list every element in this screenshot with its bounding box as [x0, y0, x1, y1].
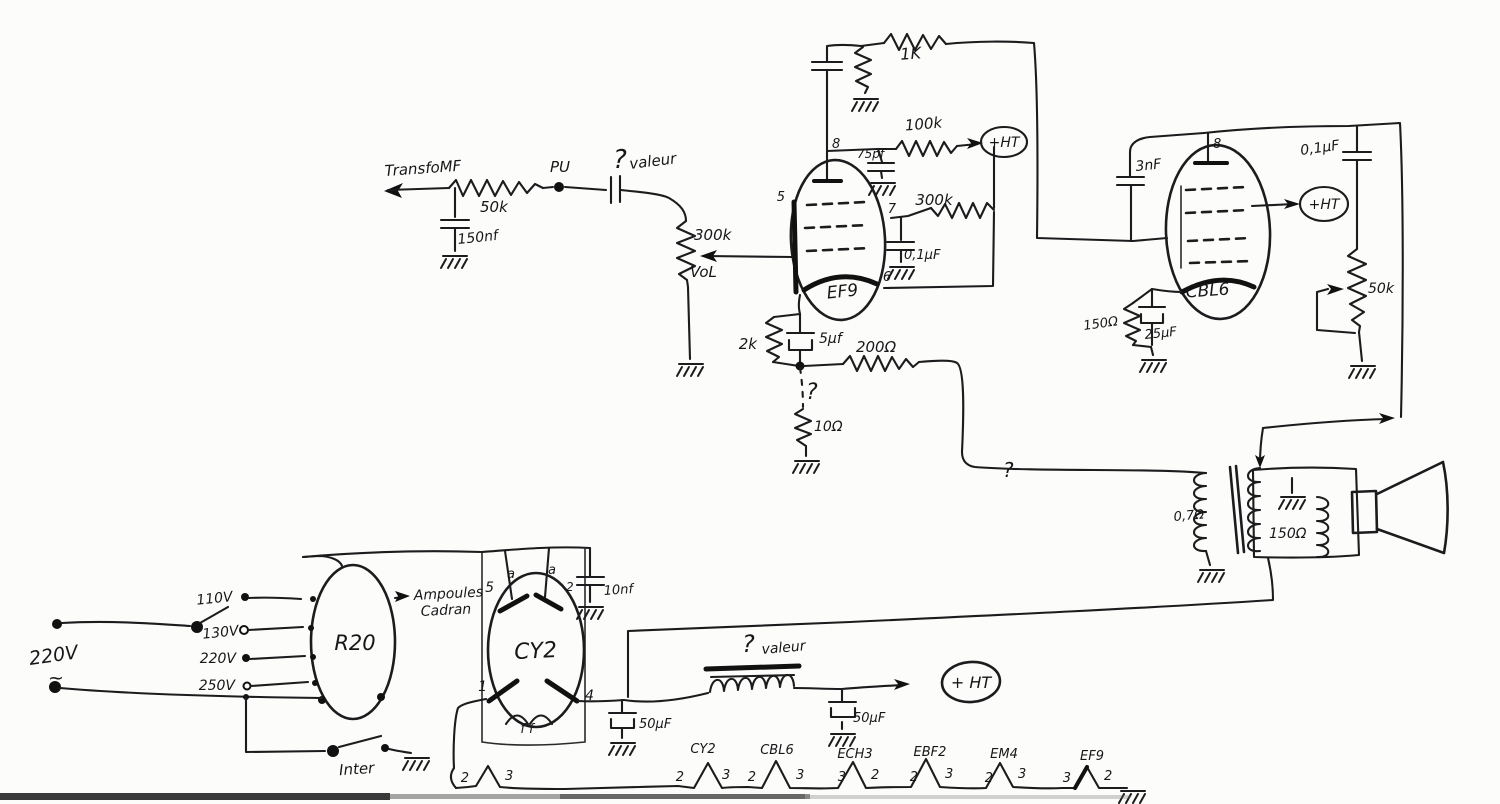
heater-pin: 3: [1018, 767, 1026, 782]
heater-pin: 2: [1104, 769, 1112, 784]
label-75pf: 75pf: [857, 147, 886, 161]
ground-icon: [888, 267, 914, 279]
tone-cap: [1343, 126, 1371, 249]
label-ht3: + HT: [951, 673, 993, 692]
cbl6-stage: 3nF 8 +HT 0,1μF 50k 150Ω 25μF CBL6: [1082, 123, 1402, 417]
resistor-10ohm: [795, 409, 811, 446]
ground-icon: [677, 364, 703, 376]
label-choke-valeur: valeur: [761, 638, 807, 658]
label-r20: R20: [334, 631, 375, 655]
label-cy2-pin4: 4: [585, 688, 594, 704]
label-pu: PU: [550, 158, 570, 176]
label-50uf-2: 50μF: [853, 711, 886, 726]
heater-pin: 2: [748, 770, 756, 785]
resistor-50k: [449, 180, 543, 196]
cap-50uf-1: [609, 700, 636, 738]
tone-wiper-arrow-icon: [1327, 284, 1344, 295]
hum-dashed-wire: [800, 368, 803, 407]
label-cy2-name: CY2: [514, 638, 558, 665]
resistor-150ohm: [1124, 303, 1140, 345]
schematic-drawing: TransfoMF 50k 150nf PU ? valeur 300k VoL…: [0, 0, 1500, 804]
cbl6-grids: [1186, 187, 1252, 263]
input-stage: TransfoMF 50k 150nf PU ? valeur 300k VoL: [384, 145, 793, 376]
schematic-page: TransfoMF 50k 150nf PU ? valeur 300k VoL…: [0, 0, 1500, 804]
label-3nf: 3nF: [1135, 156, 1163, 175]
label-tap220: 220V: [200, 651, 238, 667]
resistor-100k: [896, 141, 957, 156]
label-cy2-a-right: a: [548, 563, 556, 578]
label-2k: 2k: [739, 335, 759, 353]
label-pre-right: 3: [505, 769, 513, 784]
heater-pin: 3: [838, 770, 846, 785]
label-mains-wave: ~: [48, 667, 64, 689]
heater-pin: 2: [985, 771, 993, 786]
label-screen-cap: 0,1μF: [904, 248, 941, 263]
ef9-grids: [805, 202, 870, 251]
label-300k-screen: 300k: [915, 191, 954, 209]
heater-pin: 2: [871, 768, 879, 783]
label-ht1: +HT: [989, 135, 1021, 151]
label-cy2-pin5: 5: [485, 580, 494, 596]
cap-75pf: [868, 163, 894, 171]
heater-pin: 2: [910, 770, 918, 785]
voice-coil: [1317, 497, 1328, 557]
label-ef9-pin7: 7: [888, 202, 897, 217]
heater-tube-name: CBL6: [760, 743, 794, 758]
pu-node: [554, 182, 564, 192]
label-cy2-pin2: 2: [566, 580, 574, 594]
label-cap-valeur: valeur: [628, 149, 678, 173]
ground-icon: [869, 183, 895, 195]
lamps-arrow-icon: [395, 591, 410, 602]
label-cy2-a-left: a: [507, 567, 515, 582]
ground-icon: [1349, 366, 1375, 378]
label-50k: 50k: [480, 198, 509, 216]
label-cbl6-pin8: 8: [1213, 137, 1221, 152]
label-tap110: 110V: [196, 589, 235, 609]
label-ef9-question: ?: [806, 380, 818, 405]
label-300k-vol: 300k: [694, 226, 733, 244]
label-tone-pot: 50k: [1368, 281, 1395, 297]
label-1k: 1K: [900, 43, 923, 64]
switch-lever: [339, 736, 381, 747]
ground-icon: [793, 461, 819, 473]
scan-artifact: [0, 793, 1130, 800]
cap-150nf: [441, 220, 469, 228]
label-lamps-2: Cadran: [420, 601, 471, 620]
label-tap250: 250V: [199, 678, 237, 694]
mains-terminal: [52, 619, 62, 629]
tap-dot: [241, 593, 249, 601]
label-primary: 0,7Ω: [1173, 507, 1205, 525]
label-50uf-1: 50μF: [639, 717, 672, 732]
heater-pin: 3: [1063, 771, 1071, 786]
heater-pin: 3: [945, 767, 953, 782]
resistor-2k: [766, 317, 782, 362]
grid-leak-resistor: [855, 47, 871, 93]
heater-pin: 3: [796, 768, 804, 783]
label-secondary: 150Ω: [1269, 526, 1307, 542]
selector-lever: [200, 607, 228, 623]
heater-pin: 2: [676, 770, 684, 785]
ground-icon: [441, 256, 467, 268]
label-inter: Inter: [338, 759, 375, 779]
heater-wire: [456, 759, 1127, 789]
tap-dot: [242, 654, 250, 662]
tap-dot: [240, 626, 248, 634]
speaker-box: [1253, 468, 1359, 558]
speaker-cone: [1377, 462, 1448, 553]
speaker-magnet: [1352, 491, 1377, 533]
cy2-filament-leads: [489, 681, 577, 701]
cy2-anode-right: [536, 595, 561, 609]
ground-icon: [403, 758, 429, 770]
label-ef9-pin8: 8: [832, 137, 840, 152]
heater-tube-name: EF9: [1080, 749, 1104, 764]
label-vol: VoL: [690, 263, 717, 281]
coupling-cap: [611, 176, 620, 203]
label-tap130: 130V: [202, 623, 241, 643]
label-cap-question: ?: [613, 145, 627, 175]
label-10nf: 10nf: [603, 582, 636, 599]
label-tone-cap: 0,1μF: [1299, 138, 1341, 159]
ground-icon: [1198, 570, 1224, 582]
cap-3nf: [1117, 177, 1144, 185]
label-ef9-name: EF9: [826, 280, 859, 303]
transformer-core: [1230, 466, 1244, 553]
cap-10nf: [577, 548, 604, 602]
ef9-stage: 5 8 7 6 100k +HT 300k 0,1μF 75pf 1K 2k 5…: [739, 34, 1206, 473]
tap-dot: [244, 683, 251, 690]
heater-pin: 3: [722, 768, 730, 783]
label-ef9-pin5: 5: [777, 190, 785, 205]
heater-tube-name: EBF2: [914, 745, 947, 760]
heater-tube-name: ECH3: [837, 747, 872, 762]
label-ef9-pin6: 6: [883, 270, 891, 285]
resistor-200ohm: [843, 356, 919, 371]
label-200ohm: 200Ω: [856, 338, 897, 356]
label-cbl6-name: CBL6: [1185, 279, 1230, 302]
label-ht2: +HT: [1309, 197, 1341, 213]
label-150ohm: 150Ω: [1082, 314, 1119, 334]
label-cy2-filament: f f: [520, 722, 536, 737]
label-mains: 220V: [28, 641, 82, 670]
ground-icon: [1279, 497, 1305, 509]
cap-50uf-2: [829, 689, 856, 729]
label-100k: 100k: [904, 113, 944, 134]
mains-return-wire: [60, 688, 322, 698]
label-cy2-pin1: 1: [478, 679, 487, 695]
ef9-grid-bar: [794, 202, 796, 292]
tone-pot: [1348, 249, 1366, 332]
choke-core: [706, 666, 799, 669]
ground-icon: [852, 99, 878, 111]
label-choke-question: ?: [742, 630, 755, 658]
label-pre-left: 2: [461, 771, 469, 786]
heater-tube-name: EM4: [990, 747, 1018, 762]
heater-tube-name: CY2: [690, 742, 715, 757]
label-25uf: 25μF: [1144, 325, 1178, 343]
label-5uf: 5μf: [819, 331, 844, 347]
switch-contact: [327, 745, 339, 757]
ground-icon: [829, 734, 855, 746]
label-output-question: ?: [1003, 458, 1014, 482]
ground-icon: [609, 743, 635, 755]
heater-chain: 2 3 CY2 2 3 CBL6 2 3 ECH3 3 2 EBF2 2 3 E…: [456, 742, 1145, 803]
cap-5uf: [787, 314, 814, 364]
label-transfo-mf: TransfoMF: [384, 157, 462, 180]
label-lamps-1: Ampoules: [412, 584, 483, 604]
label-10ohm: 10Ω: [814, 419, 843, 435]
ef9-top-cap: [812, 62, 842, 70]
ground-icon: [1140, 360, 1166, 372]
cy2-anode-left: [500, 596, 527, 611]
label-150nf: 150nf: [457, 228, 501, 248]
backbias-wire: [919, 361, 1206, 473]
